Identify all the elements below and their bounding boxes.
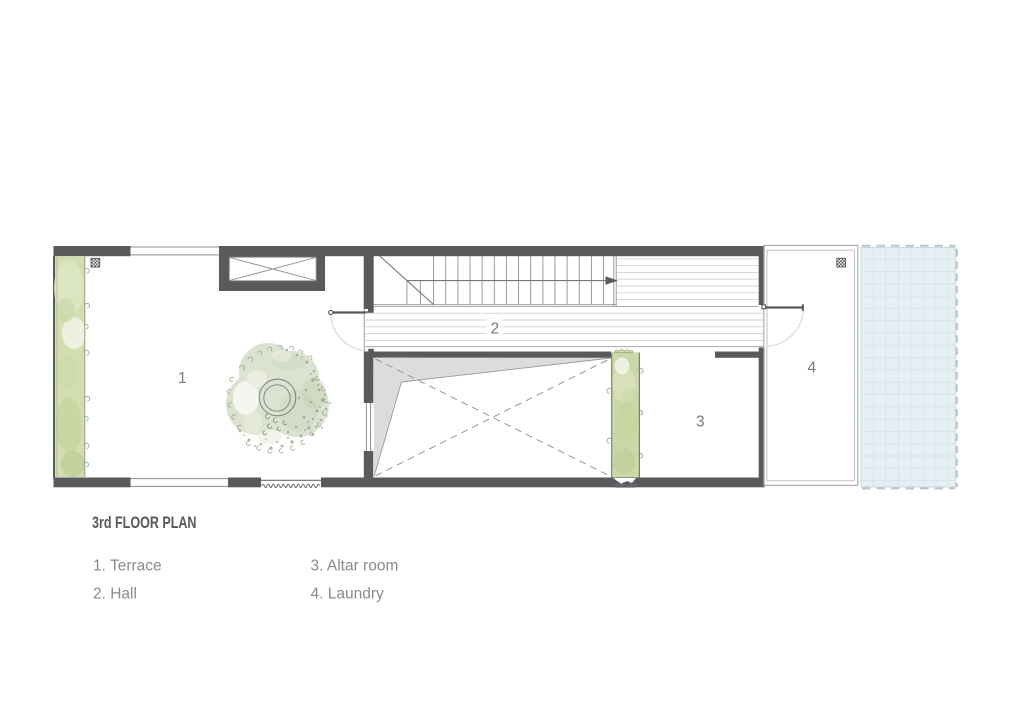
svg-text:4: 4	[808, 360, 817, 377]
svg-text:2. Hall: 2. Hall	[93, 586, 137, 603]
svg-text:4. Laundry: 4. Laundry	[311, 586, 384, 603]
svg-text:3. Altar room: 3. Altar room	[311, 558, 399, 575]
svg-text:1. Terrace: 1. Terrace	[93, 558, 162, 575]
svg-text:2: 2	[491, 321, 500, 338]
svg-text:3: 3	[696, 414, 705, 431]
svg-text:1: 1	[178, 370, 187, 387]
svg-text:3rd FLOOR PLAN: 3rd FLOOR PLAN	[92, 513, 197, 532]
